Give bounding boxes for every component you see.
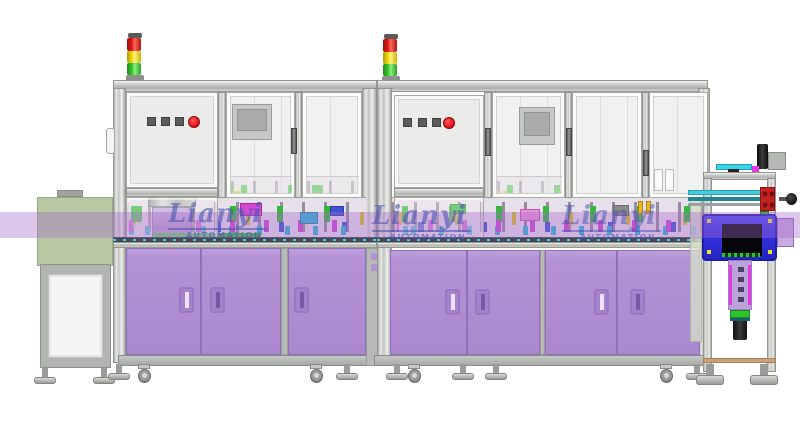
cabinet-door <box>545 250 617 355</box>
infeed-cover-cap <box>57 190 83 197</box>
lower-window <box>126 197 218 241</box>
machinery-block <box>300 212 318 224</box>
led-strip <box>722 253 760 257</box>
door-handle <box>445 289 460 315</box>
frame-mid-beam <box>394 188 484 197</box>
side-cover <box>690 198 702 342</box>
enclosure-panel <box>572 92 642 198</box>
gripper-arm <box>728 260 752 310</box>
leveling-foot <box>485 364 507 380</box>
hmi-monitor <box>232 104 272 140</box>
caster-wheel <box>136 364 152 383</box>
caster-wheel <box>406 364 422 383</box>
enclosure-panel <box>492 92 565 198</box>
indicator-pip <box>707 250 711 254</box>
internal-equipment <box>307 176 359 193</box>
lower-window <box>394 197 484 240</box>
frame-mid-beam <box>126 188 218 197</box>
door-handle <box>630 289 645 315</box>
infeed-green-cover <box>37 197 113 266</box>
panel-handle <box>485 128 491 156</box>
bottle <box>654 169 663 191</box>
cabinet-door <box>201 248 281 355</box>
leveling-foot <box>34 368 56 384</box>
side-window <box>777 218 794 247</box>
indicator-pip <box>768 250 772 254</box>
signal-green-light <box>127 63 141 75</box>
signal-tower <box>126 31 144 81</box>
signal-yellow-light <box>383 52 397 64</box>
machinery-block <box>638 201 643 214</box>
camera-housing <box>702 214 777 261</box>
gantry-foot <box>750 364 778 385</box>
emergency-stop-button <box>443 117 455 129</box>
side-latch <box>106 128 115 154</box>
gantry-post <box>703 178 712 372</box>
signal-red-light <box>383 39 397 52</box>
panel-button <box>175 117 184 126</box>
enclosure-panel <box>649 92 708 198</box>
pneumatic-tube <box>688 197 770 201</box>
bottle <box>665 169 674 191</box>
machinery-block <box>520 209 540 221</box>
leveling-foot <box>108 364 130 380</box>
internal-equipment <box>231 176 292 193</box>
signal-yellow-light <box>127 51 141 63</box>
control-panel <box>126 92 218 188</box>
cabinet-door <box>126 248 201 355</box>
assembly-line-render: Lianyi AUTOMATION Lianyi AUTOMATION Lian… <box>0 0 800 438</box>
machinery-block <box>613 205 629 216</box>
motor-bracket <box>768 152 786 170</box>
arm-rail <box>748 265 751 305</box>
door-handle <box>475 289 490 315</box>
gripper-nozzle <box>733 321 747 340</box>
pneumatic-tube <box>688 190 770 195</box>
cabinet-door <box>467 250 540 355</box>
enclosure-panel <box>226 92 295 198</box>
door-handle <box>210 287 225 313</box>
gantry-foot <box>696 364 724 385</box>
infeed-unit <box>0 0 120 438</box>
clamp-block <box>760 187 775 211</box>
adjust-knob <box>786 193 797 205</box>
door-handle <box>294 287 309 313</box>
panel-button <box>147 117 156 126</box>
infeed-cabinet-panel <box>48 274 103 358</box>
machinery-block <box>240 203 262 216</box>
door-handle <box>179 287 194 313</box>
panel-button <box>161 117 170 126</box>
panel-button <box>403 118 412 127</box>
leveling-foot <box>386 364 408 380</box>
base-plate <box>703 358 776 363</box>
signal-green-light <box>383 64 397 76</box>
machinery-block <box>330 206 344 216</box>
gantry-top-beam <box>703 172 776 180</box>
frame-column <box>113 88 126 363</box>
tube-loop <box>678 173 704 191</box>
emergency-stop-button <box>188 116 200 128</box>
door-handle <box>594 289 609 315</box>
panel-divider <box>218 92 226 198</box>
control-panel <box>394 95 484 188</box>
gripper-cap <box>730 310 750 318</box>
frame-top-beam <box>113 80 377 92</box>
panel-divider <box>642 92 649 198</box>
signal-tower <box>382 32 400 82</box>
leveling-foot <box>452 364 474 380</box>
cabinet-frame <box>281 248 288 355</box>
guide-rod <box>688 203 770 206</box>
arm-hole-column <box>738 267 744 307</box>
signal-red-light <box>127 38 141 51</box>
frame-top-beam <box>377 80 708 92</box>
cabinet-door <box>390 250 467 355</box>
caster-wheel <box>308 364 324 383</box>
panel-button <box>432 118 441 127</box>
indicator-pip <box>707 219 711 223</box>
indicator-pip <box>768 219 772 223</box>
panel-button <box>418 118 427 127</box>
hmi-monitor <box>519 107 555 145</box>
inspection-window <box>722 224 762 256</box>
cabinet-door <box>288 248 366 355</box>
cabinet-door <box>617 250 700 355</box>
enclosure-panel <box>302 92 362 198</box>
leveling-foot <box>336 364 358 380</box>
arm-rail <box>729 265 732 305</box>
machinery-block <box>646 201 651 214</box>
internal-equipment <box>497 176 562 193</box>
table-front-beam <box>377 242 710 248</box>
panel-handle <box>291 128 297 154</box>
caster-wheel <box>658 364 674 383</box>
